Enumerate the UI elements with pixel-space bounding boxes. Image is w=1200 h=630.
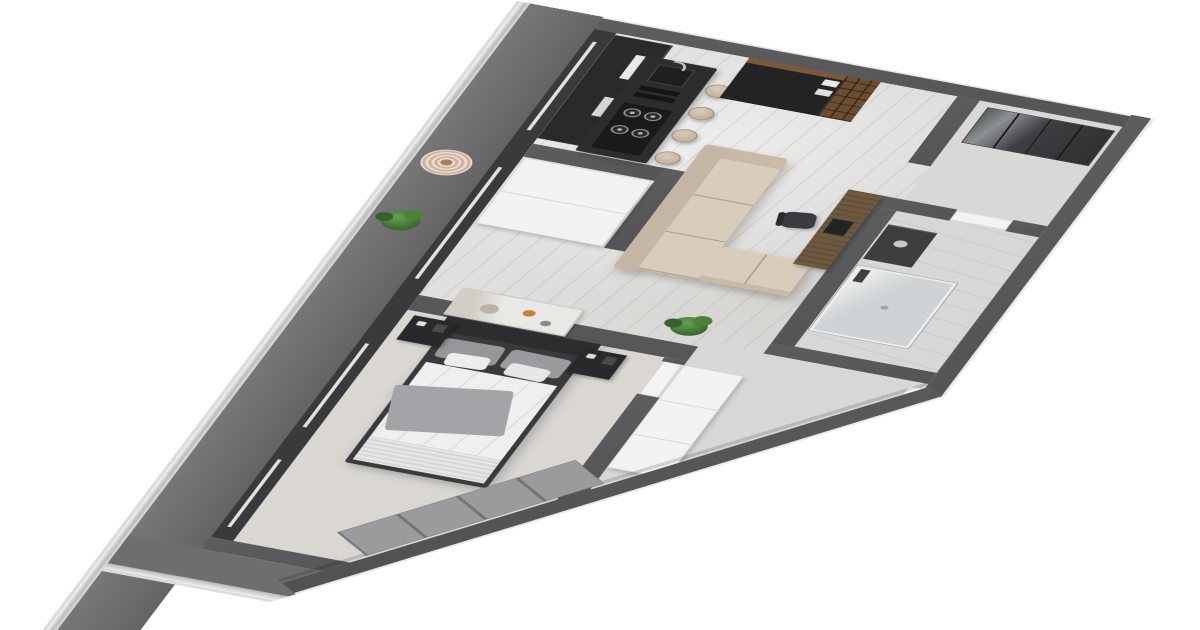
apartment-scene <box>27 1 1173 630</box>
floorplan-render <box>0 0 1200 630</box>
gray-throw-blanket <box>384 385 514 437</box>
burner <box>641 111 664 122</box>
white-shelf-box <box>814 89 833 97</box>
burner <box>629 128 652 139</box>
white-shelf-box <box>821 79 840 87</box>
laptop <box>823 218 854 236</box>
burner <box>608 124 631 135</box>
burner <box>621 107 644 118</box>
desk-chair <box>780 211 818 229</box>
